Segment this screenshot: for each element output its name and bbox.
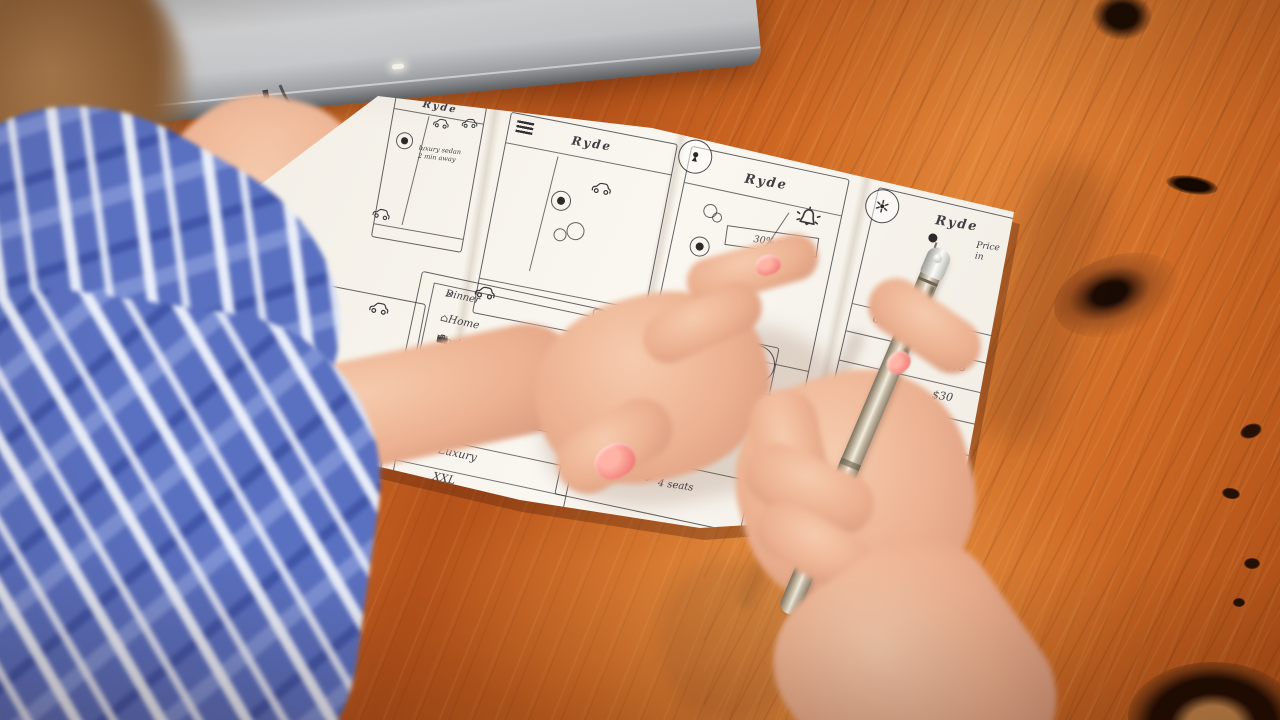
app-title: Ryde [743, 172, 788, 194]
price-note: Price in [974, 241, 1000, 266]
app-title: Ryde [570, 134, 612, 154]
car-icon [367, 301, 390, 317]
destination-row: ⌂ Home [439, 311, 449, 324]
car-icon [461, 118, 478, 129]
menu-icon [515, 120, 534, 135]
photo-stage: Ryde luxury sedan 2 min away Ryde [0, 0, 1280, 720]
map-bubble [711, 211, 723, 223]
road-line [529, 156, 559, 271]
car-icon [591, 180, 614, 196]
location-pin-icon [550, 189, 573, 212]
wood-fleck [1233, 598, 1245, 607]
bell-icon [793, 204, 823, 233]
car-icon [432, 116, 450, 129]
destination-label: Home [447, 313, 480, 331]
location-pin-icon [687, 234, 711, 258]
map-annotation: luxury sedan 2 min away [417, 144, 472, 166]
map-bubble [564, 221, 585, 242]
map-bubble [552, 227, 567, 242]
destination-label: Dinner [444, 289, 480, 307]
app-title: Ryde [934, 213, 979, 235]
car-icon [371, 206, 392, 222]
location-pin-icon [395, 131, 415, 151]
wood-fleck [1244, 558, 1260, 569]
sketch-line [374, 223, 463, 240]
